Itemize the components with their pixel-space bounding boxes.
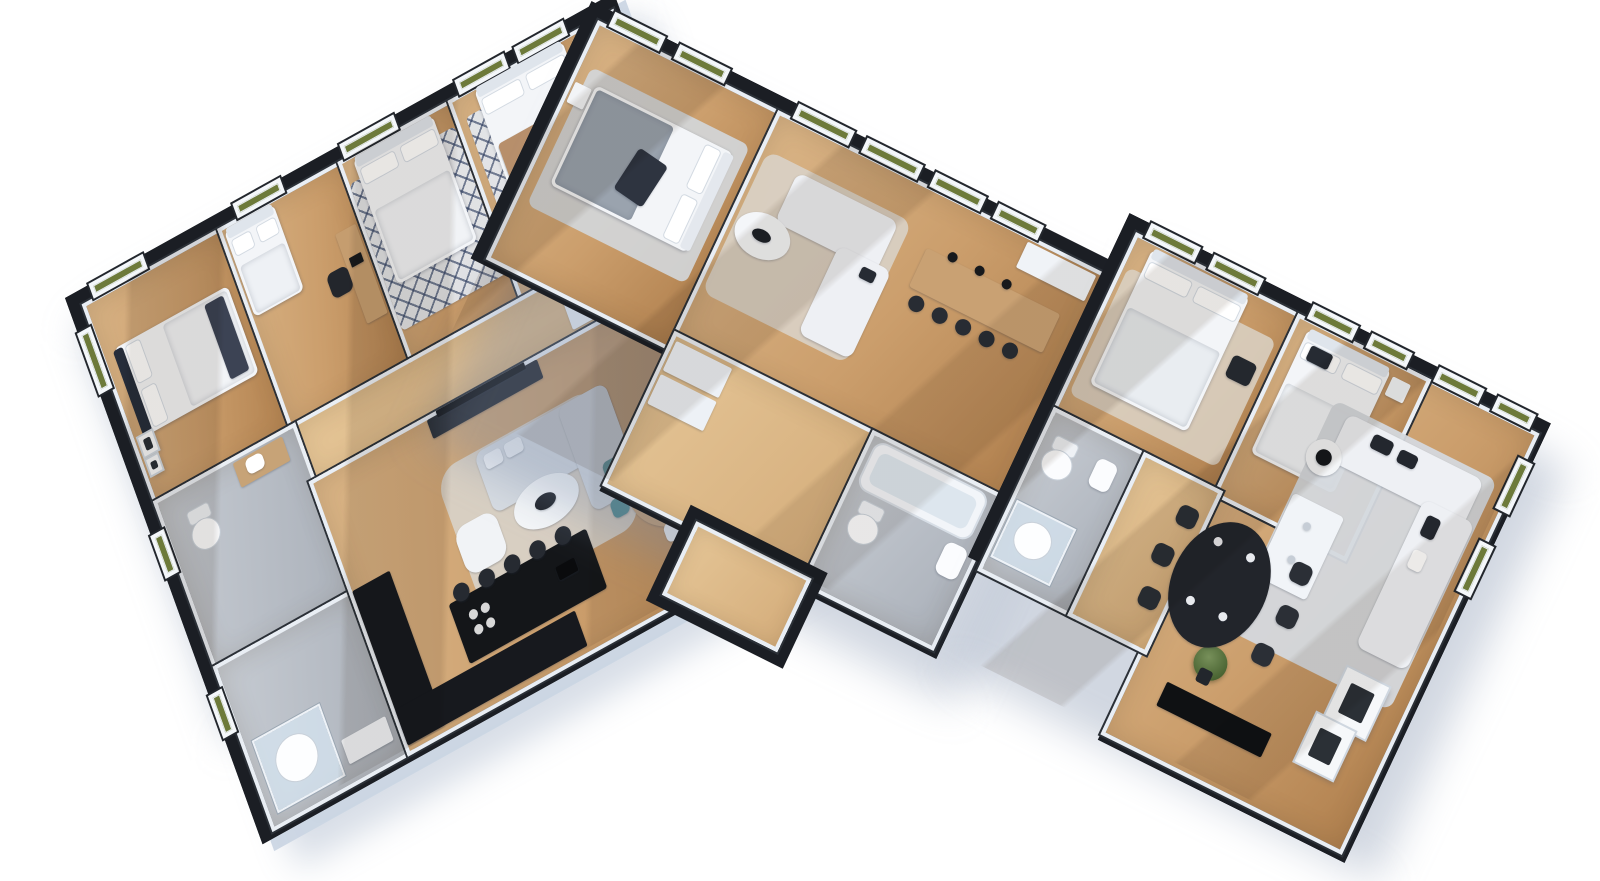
shower-tray (1008, 517, 1057, 566)
floor-plan-3d-render (0, 0, 1600, 863)
wall-frame-art (143, 436, 154, 451)
shower-tray (270, 726, 324, 789)
wall-frame-art (1338, 683, 1375, 723)
wall-frame-art (1308, 728, 1342, 765)
wall-frame-art (150, 459, 159, 471)
